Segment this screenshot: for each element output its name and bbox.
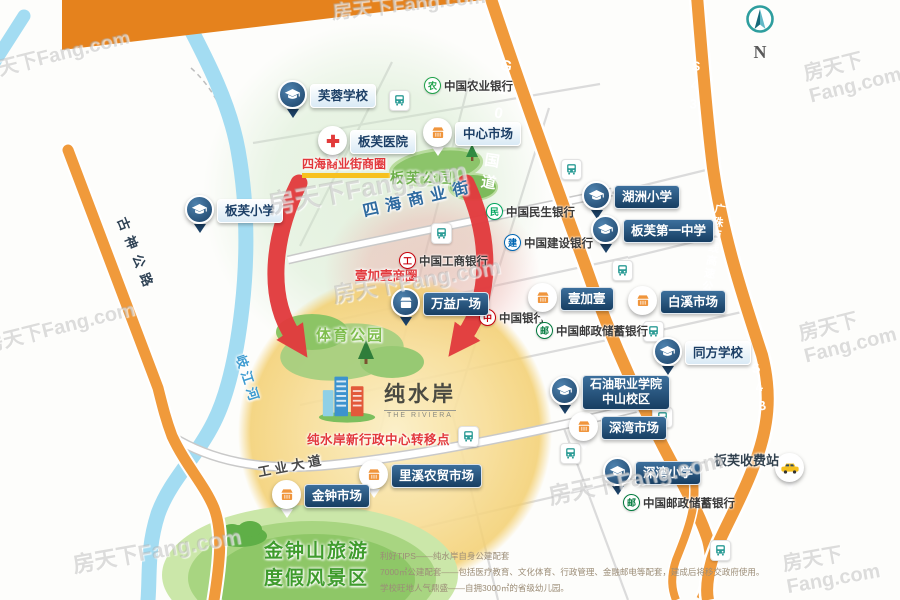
compass-north-label: N (742, 42, 778, 63)
school-pin[interactable] (591, 215, 620, 244)
pin-tail (281, 509, 293, 518)
bank-icon: 工 (399, 252, 416, 269)
project-logo: 纯水岸 THE RIVIERA (318, 366, 456, 429)
poi-label[interactable]: 石油职业学院中山校区 (582, 375, 670, 410)
bus-stop-icon[interactable] (431, 223, 452, 244)
banfu-park-label: 板芙公园 (390, 168, 454, 188)
school-pin[interactable] (582, 181, 611, 210)
school-pin[interactable] (653, 337, 682, 366)
school-pin[interactable] (185, 195, 214, 224)
pin-tail (600, 244, 612, 253)
bank-label: 中国农业银行 (444, 78, 513, 94)
project-subtitle: THE RIVIERA (384, 410, 456, 419)
tips-line-2: 7000㎡公建配套——包括医疗教育、文化体育、行政管理、金融邮电等配套，建成后将… (380, 564, 764, 580)
poi-label[interactable]: 深湾市场 (601, 416, 667, 440)
pin-tail (194, 224, 206, 233)
bus-stop-icon[interactable] (458, 426, 479, 447)
bank-marker[interactable]: 工中国工商银行 (399, 252, 488, 269)
project-logo-buildings-icon (318, 366, 378, 429)
compass: N (742, 4, 778, 63)
poi-label[interactable]: 板芙收费站 (714, 450, 779, 469)
bank-marker[interactable]: 邮中国邮政储蓄银行 (623, 494, 735, 511)
yellow-underline (302, 173, 390, 178)
pin-tail (559, 405, 571, 414)
bus-stop-icon[interactable] (612, 260, 633, 281)
bank-icon: 邮 (536, 322, 553, 339)
sihai-business-circle-label: 四海商业街商圈 (302, 155, 390, 178)
poi-label[interactable]: 白溪市场 (660, 290, 726, 314)
poi-label[interactable]: 万益广场 (423, 292, 489, 316)
poi-label[interactable]: 同方学校 (685, 341, 751, 365)
market-pin[interactable] (528, 283, 557, 312)
pin-tail (578, 441, 590, 450)
bank-label: 中国邮政储蓄银行 (643, 495, 735, 511)
poi-label[interactable]: 中心市场 (455, 122, 521, 146)
bus-stop-icon[interactable] (710, 540, 731, 561)
map: G105国道 S43 S43 广珠西线高速公路 古神公路 工业大道 岐江河 四海… (0, 0, 900, 600)
poi-label[interactable]: 里溪农贸市场 (391, 464, 482, 488)
pin-tail (287, 109, 299, 118)
poi-label[interactable]: 壹加壹 (560, 287, 614, 311)
poi-label[interactable]: 芙蓉学校 (310, 84, 376, 108)
poi-label[interactable]: 板芙小学 (217, 199, 283, 223)
sports-park-label: 体育公园 (316, 324, 384, 345)
pin-tail (537, 312, 549, 321)
poi-label[interactable]: 金钟市场 (304, 484, 370, 508)
pin-tail (637, 315, 649, 324)
pin-tail (612, 486, 624, 495)
pin-tail (784, 482, 796, 491)
poi-label-line: 石油职业学院 (590, 377, 662, 392)
poi-label[interactable]: 板芙第一中学 (623, 219, 714, 243)
bank-marker[interactable]: 邮中国邮政储蓄银行 (536, 322, 648, 339)
resort-label: 金钟山旅游 度假风景区 (264, 536, 369, 590)
pin-tail (327, 155, 339, 164)
bank-marker[interactable]: 民中国民生银行 (486, 203, 575, 220)
tips-line-3: 学校旺地人气鼎盛——自拥3000㎡的省级幼儿园。 (380, 580, 764, 596)
compass-icon (742, 23, 778, 40)
bank-label: 中国工商银行 (419, 253, 488, 269)
market-pin[interactable] (628, 286, 657, 315)
bank-marker[interactable]: 农中国农业银行 (424, 77, 513, 94)
taxi-pin[interactable] (775, 453, 804, 482)
pin-tail (662, 366, 674, 375)
school-pin[interactable] (278, 80, 307, 109)
bank-icon: 邮 (623, 494, 640, 511)
bank-icon: 民 (486, 203, 503, 220)
bank-label: 中国民生银行 (506, 204, 575, 220)
poi-label[interactable]: 湖洲小学 (614, 185, 680, 209)
bank-label: 中国邮政储蓄银行 (556, 323, 648, 339)
market-pin[interactable] (391, 288, 420, 317)
project-name: 纯水岸 (384, 378, 456, 408)
bank-icon: 农 (424, 77, 441, 94)
market-pin[interactable] (272, 480, 301, 509)
bus-stop-icon[interactable] (389, 90, 410, 111)
market-pin[interactable] (423, 118, 452, 147)
bank-marker[interactable]: 建中国建设银行 (504, 234, 593, 251)
poi-label[interactable]: 板芙医院 (350, 130, 416, 154)
bank-label: 中国建设银行 (524, 235, 593, 251)
poi-label[interactable]: 深湾小学 (635, 461, 701, 485)
school-pin[interactable] (603, 457, 632, 486)
pin-tail (432, 147, 444, 156)
market-pin[interactable] (569, 412, 598, 441)
bus-stop-icon[interactable] (561, 159, 582, 180)
tips-block: 利好TIPS——纯水岸自身公建配套 7000㎡公建配套——包括医疗教育、文化体育… (380, 548, 764, 596)
poi-label-line: 中山校区 (590, 392, 662, 407)
pin-tail (400, 317, 412, 326)
tips-line-1: 利好TIPS——纯水岸自身公建配套 (380, 548, 764, 564)
new-admin-center-label: 纯水岸新行政中心转移点 (307, 429, 450, 448)
hospital-pin[interactable] (318, 126, 347, 155)
bank-icon: 建 (504, 234, 521, 251)
school-pin[interactable] (550, 376, 579, 405)
